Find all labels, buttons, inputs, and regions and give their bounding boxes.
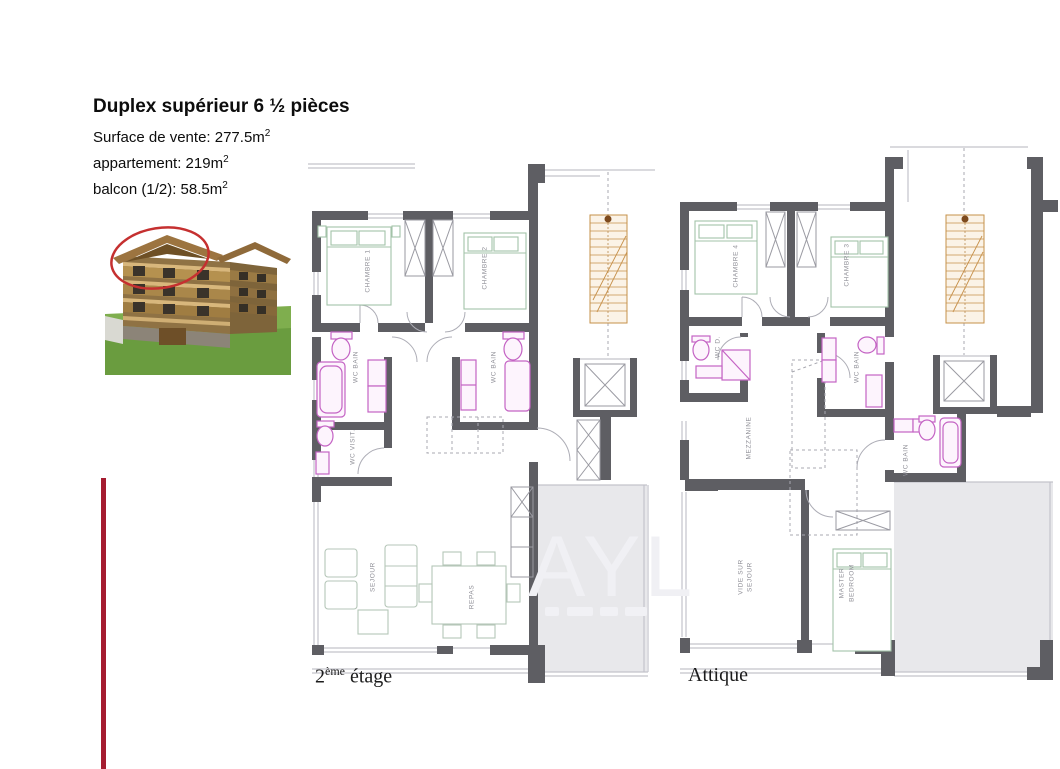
room-label-chambre1: CHAMBRE 1 xyxy=(365,249,372,292)
stair-start-dot xyxy=(962,216,969,223)
room-label-wcbain-top: WC BAIN xyxy=(854,351,861,383)
floorplan-attique: CHAMBRE 4 CHAMBRE 3 WC D. WC BAIN MEZZAN… xyxy=(680,147,1058,680)
sanitary-fixtures xyxy=(316,332,530,474)
area-line-sale: Surface de vente: 277.5m2 xyxy=(93,123,350,149)
beds xyxy=(695,221,891,651)
building-photo xyxy=(105,222,291,375)
stairs xyxy=(946,215,984,323)
beds xyxy=(318,226,526,309)
floorplan-2eme-etage: CHAMBRE 1 CHAMBRE 2 WC BAIN WC BAIN WC V… xyxy=(308,164,655,683)
room-label-master-line2: BEDROOM xyxy=(849,564,856,602)
thin-lines xyxy=(308,164,655,676)
room-label-wcbain-low: WC BAIN xyxy=(903,444,910,476)
sanitary-fixtures xyxy=(692,336,961,467)
balcony-area xyxy=(538,485,647,672)
cabinets xyxy=(766,212,984,530)
room-label-chambre2: CHAMBRE 2 xyxy=(482,246,489,289)
room-label-vide-line2: SEJOUR xyxy=(747,562,754,592)
roof-right-gable xyxy=(217,242,291,264)
caption-attique: Attique xyxy=(688,664,748,687)
room-label-chambre4: CHAMBRE 4 xyxy=(733,244,740,287)
room-label-repas: REPAS xyxy=(469,585,476,610)
area-line-balcony: balcon (1/2): 58.5m2 xyxy=(93,175,350,201)
room-label-master-line1: MASTER xyxy=(839,568,846,599)
room-label-wcvisit: WC VISIT. xyxy=(350,429,357,464)
garage-door xyxy=(159,328,186,345)
room-label-wcbain-left: WC BAIN xyxy=(353,351,360,383)
red-accent-line xyxy=(101,478,106,769)
balcony-area xyxy=(894,482,1053,672)
watermark-letters: AYL xyxy=(528,519,696,615)
door-arcs xyxy=(358,305,570,474)
room-label-wcbain-right: WC BAIN xyxy=(491,351,498,383)
furniture xyxy=(325,545,520,638)
dashed-lines xyxy=(427,172,608,453)
stair-start-dot xyxy=(605,216,612,223)
thin-lines xyxy=(680,147,1053,676)
watermark-blur-row xyxy=(545,607,647,616)
room-label-vide-line1: VIDE SUR xyxy=(738,559,745,595)
watermark: AYL xyxy=(528,519,696,616)
stairs xyxy=(590,215,627,323)
room-label-chambre3: CHAMBRE 3 xyxy=(844,243,851,286)
area-line-apartment: appartement: 219m2 xyxy=(93,149,350,175)
page-title: Duplex supérieur 6 ½ pièces xyxy=(93,96,350,118)
room-label-sejour: SEJOUR xyxy=(370,562,377,592)
room-labels: CHAMBRE 1 CHAMBRE 2 WC BAIN WC BAIN WC V… xyxy=(350,246,498,609)
walls xyxy=(312,164,637,683)
dashed-lines xyxy=(790,148,964,535)
cabinets xyxy=(405,220,625,577)
room-label-wcd: WC D. xyxy=(715,336,722,358)
caption-2eme-etage: 2ème étage xyxy=(315,664,392,689)
door-arcs xyxy=(718,297,885,517)
room-labels: CHAMBRE 4 CHAMBRE 3 WC D. WC BAIN MEZZAN… xyxy=(715,243,910,602)
room-label-mezzanine: MEZZANINE xyxy=(746,416,753,459)
header-block: Duplex supérieur 6 ½ pièces Surface de v… xyxy=(93,96,350,201)
brochure-page: Duplex supérieur 6 ½ pièces Surface de v… xyxy=(0,0,1060,769)
walls xyxy=(680,157,1058,680)
